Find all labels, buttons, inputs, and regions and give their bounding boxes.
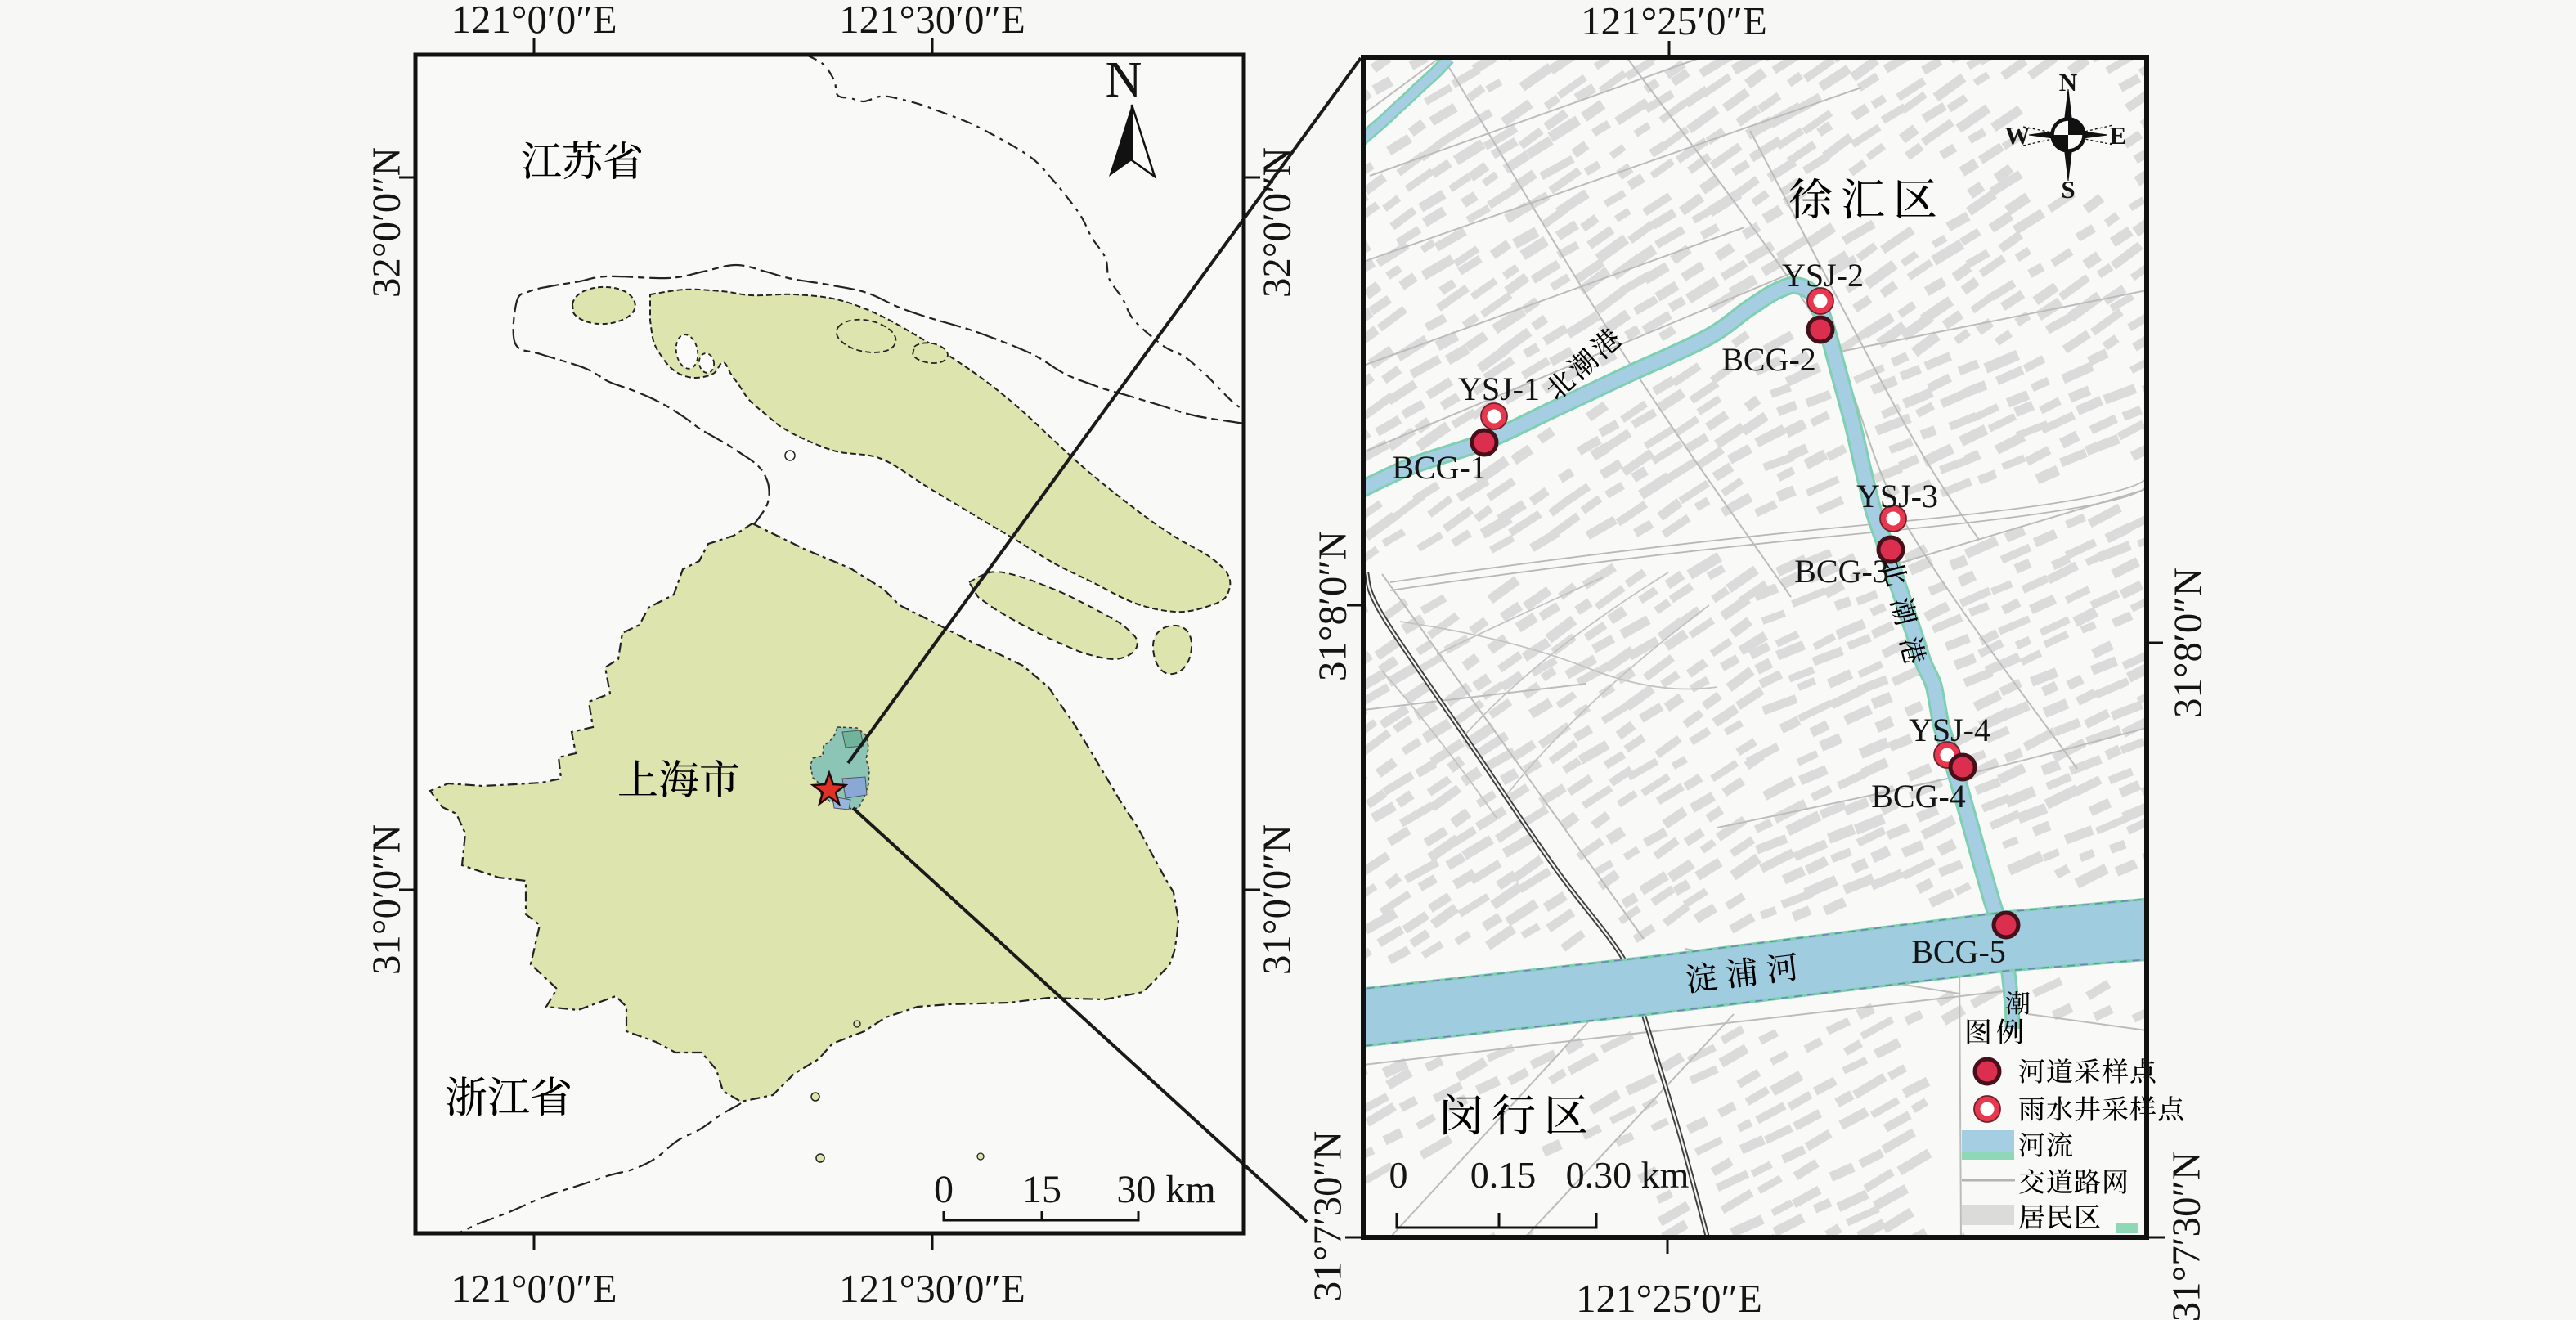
svg-text:N: N (2059, 68, 2077, 97)
svg-text:BCG-1: BCG-1 (1392, 449, 1487, 486)
svg-text:32°0′0″N: 32°0′0″N (1254, 147, 1299, 298)
svg-text:31°0′0″N: 31°0′0″N (1254, 824, 1299, 975)
svg-text:121°25′0″E: 121°25′0″E (1576, 1276, 1762, 1320)
svg-text:121°30′0″E: 121°30′0″E (839, 0, 1025, 42)
svg-text:W: W (2005, 121, 2031, 150)
svg-text:YSJ-1: YSJ-1 (1458, 370, 1540, 407)
svg-text:121°30′0″E: 121°30′0″E (839, 1266, 1025, 1311)
svg-text:S: S (2061, 175, 2075, 204)
svg-text:32°0′0″N: 32°0′0″N (363, 147, 408, 298)
svg-text:31°8′0″N: 31°8′0″N (1309, 531, 1354, 681)
svg-text:BCG-2: BCG-2 (1721, 341, 1816, 378)
svg-text:0: 0 (1389, 1154, 1408, 1196)
svg-text:121°0′0″E: 121°0′0″E (451, 1266, 617, 1311)
svg-text:BCG-5: BCG-5 (1911, 933, 2006, 970)
svg-text:15: 15 (1022, 1168, 1061, 1211)
svg-text:0.15: 0.15 (1470, 1154, 1537, 1196)
svg-text:YSJ-4: YSJ-4 (1909, 712, 1990, 748)
svg-text:N: N (1106, 52, 1142, 108)
svg-text:YSJ-2: YSJ-2 (1782, 257, 1864, 294)
svg-text:31°8′0″N: 31°8′0″N (2165, 568, 2210, 718)
svg-text:BCG-3: BCG-3 (1794, 553, 1889, 590)
svg-text:31°7′30″N: 31°7′30″N (1304, 1131, 1349, 1302)
svg-text:31°7′30″N: 31°7′30″N (2163, 1152, 2208, 1320)
svg-text:YSJ-3: YSJ-3 (1856, 478, 1938, 514)
svg-text:121°0′0″E: 121°0′0″E (451, 0, 617, 42)
svg-text:121°25′0″E: 121°25′0″E (1581, 0, 1767, 43)
svg-text:BCG-4: BCG-4 (1871, 778, 1966, 815)
svg-text:E: E (2110, 121, 2127, 150)
svg-text:30 km: 30 km (1116, 1168, 1215, 1211)
svg-text:0: 0 (934, 1168, 954, 1211)
svg-text:31°0′0″N: 31°0′0″N (363, 824, 408, 975)
svg-text:0.30 km: 0.30 km (1566, 1154, 1690, 1196)
